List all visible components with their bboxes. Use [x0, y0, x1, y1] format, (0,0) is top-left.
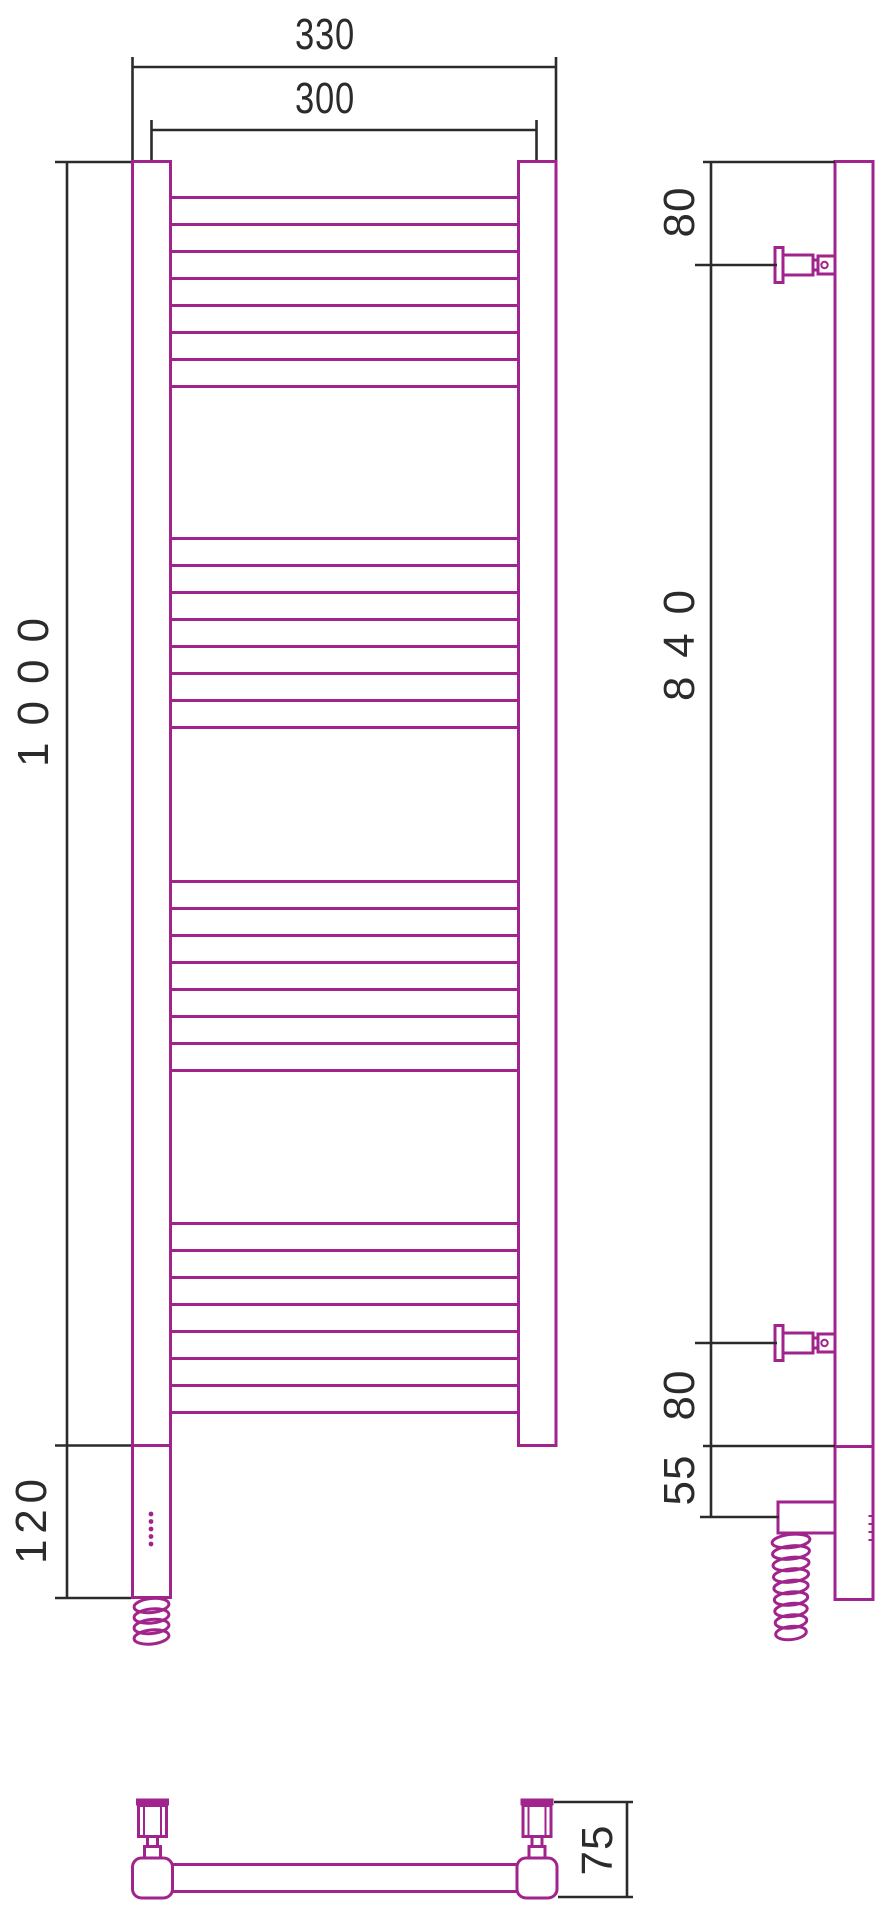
side-bracket-bottom — [775, 1326, 835, 1361]
bracket-body — [783, 1333, 813, 1353]
side-bracket-span-label: 840 — [655, 589, 704, 701]
bottom-right-rail-section — [517, 1858, 557, 1898]
side-top-to-bracket-label: 80 — [655, 187, 704, 238]
cord-coil-loop — [133, 1628, 169, 1646]
side-power-cord-coil — [771, 1532, 810, 1641]
technical-drawing: 330 300 1000 120 — [0, 0, 896, 1920]
led-dot — [149, 1527, 154, 1532]
bottom-left-rail-section — [133, 1858, 173, 1898]
bracket-outer — [523, 1806, 551, 1837]
side-dimensions: 80 840 80 55 — [655, 162, 835, 1517]
bottom-dimensions: 75 — [554, 1802, 633, 1897]
side-view — [771, 162, 874, 1642]
front-heater-zone-label: 120 — [7, 1478, 56, 1564]
bottom-view — [133, 1799, 558, 1899]
led-dot — [149, 1542, 154, 1547]
front-width-centers-label: 300 — [295, 74, 355, 123]
side-heater-junction-box — [778, 1502, 835, 1533]
led-dot — [149, 1519, 154, 1524]
side-bracket-to-bottom-label: 80 — [655, 1370, 704, 1421]
led-dot — [149, 1512, 154, 1517]
bottom-bracket-right — [521, 1799, 554, 1859]
front-width-overall-label: 330 — [295, 10, 355, 59]
side-tube — [835, 162, 873, 1600]
bottom-depth-label: 75 — [573, 1825, 622, 1876]
bracket-outer — [139, 1806, 167, 1837]
bracket-body — [783, 255, 813, 275]
side-bottom-to-heater-label: 55 — [655, 1455, 704, 1506]
front-power-cord-coil — [133, 1597, 169, 1646]
bracket-collar — [145, 1847, 161, 1859]
side-bracket-top — [775, 248, 835, 283]
front-rungs — [171, 198, 519, 1413]
front-left-rail — [133, 162, 171, 1598]
bottom-bracket-left — [136, 1799, 169, 1859]
bracket-collar — [529, 1847, 545, 1859]
front-view — [133, 162, 557, 1646]
led-dot — [149, 1534, 154, 1539]
front-height-overall-label: 1000 — [9, 617, 58, 767]
front-right-rail — [519, 162, 557, 1446]
